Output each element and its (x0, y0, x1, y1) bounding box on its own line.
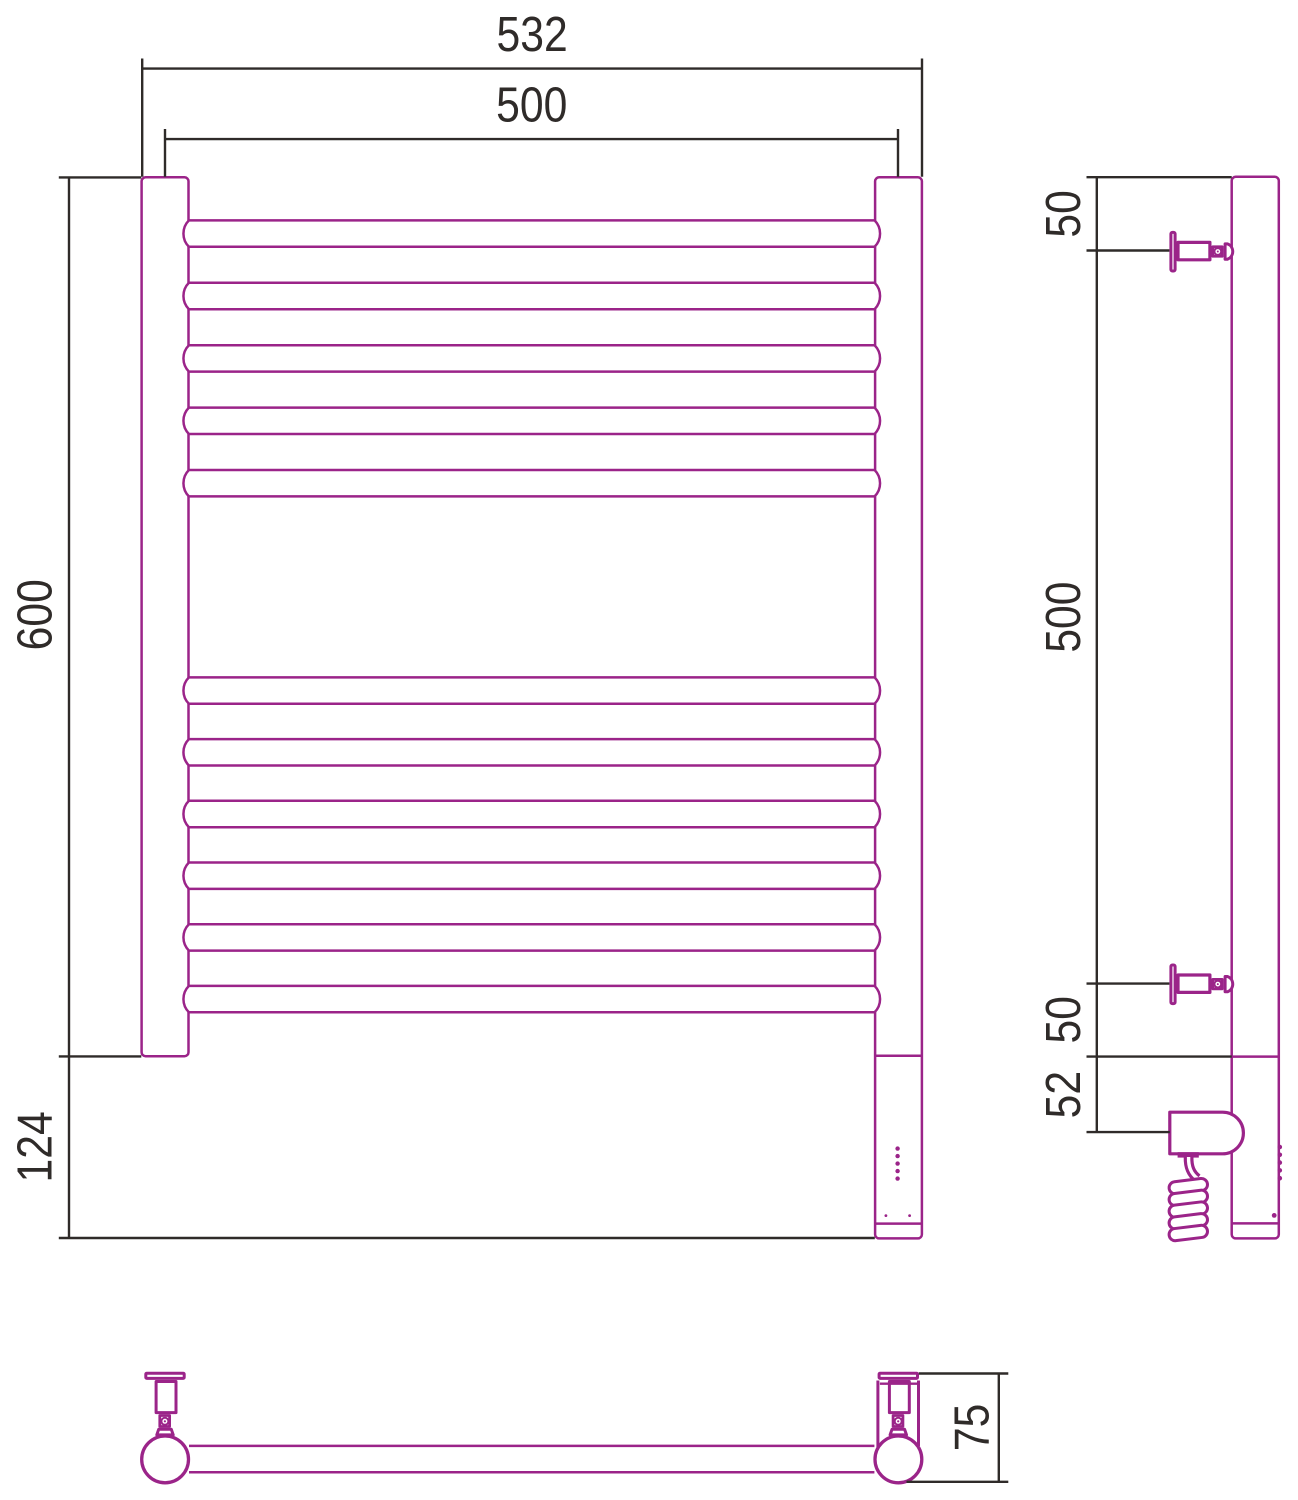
svg-text:500: 500 (496, 77, 567, 133)
svg-text:532: 532 (497, 6, 568, 62)
svg-text:500: 500 (1035, 582, 1091, 653)
svg-text:50: 50 (1035, 190, 1091, 237)
svg-text:75: 75 (943, 1404, 999, 1451)
svg-text:50: 50 (1035, 996, 1091, 1043)
svg-text:52: 52 (1035, 1071, 1091, 1118)
svg-text:600: 600 (7, 579, 63, 650)
svg-text:124: 124 (7, 1111, 63, 1182)
